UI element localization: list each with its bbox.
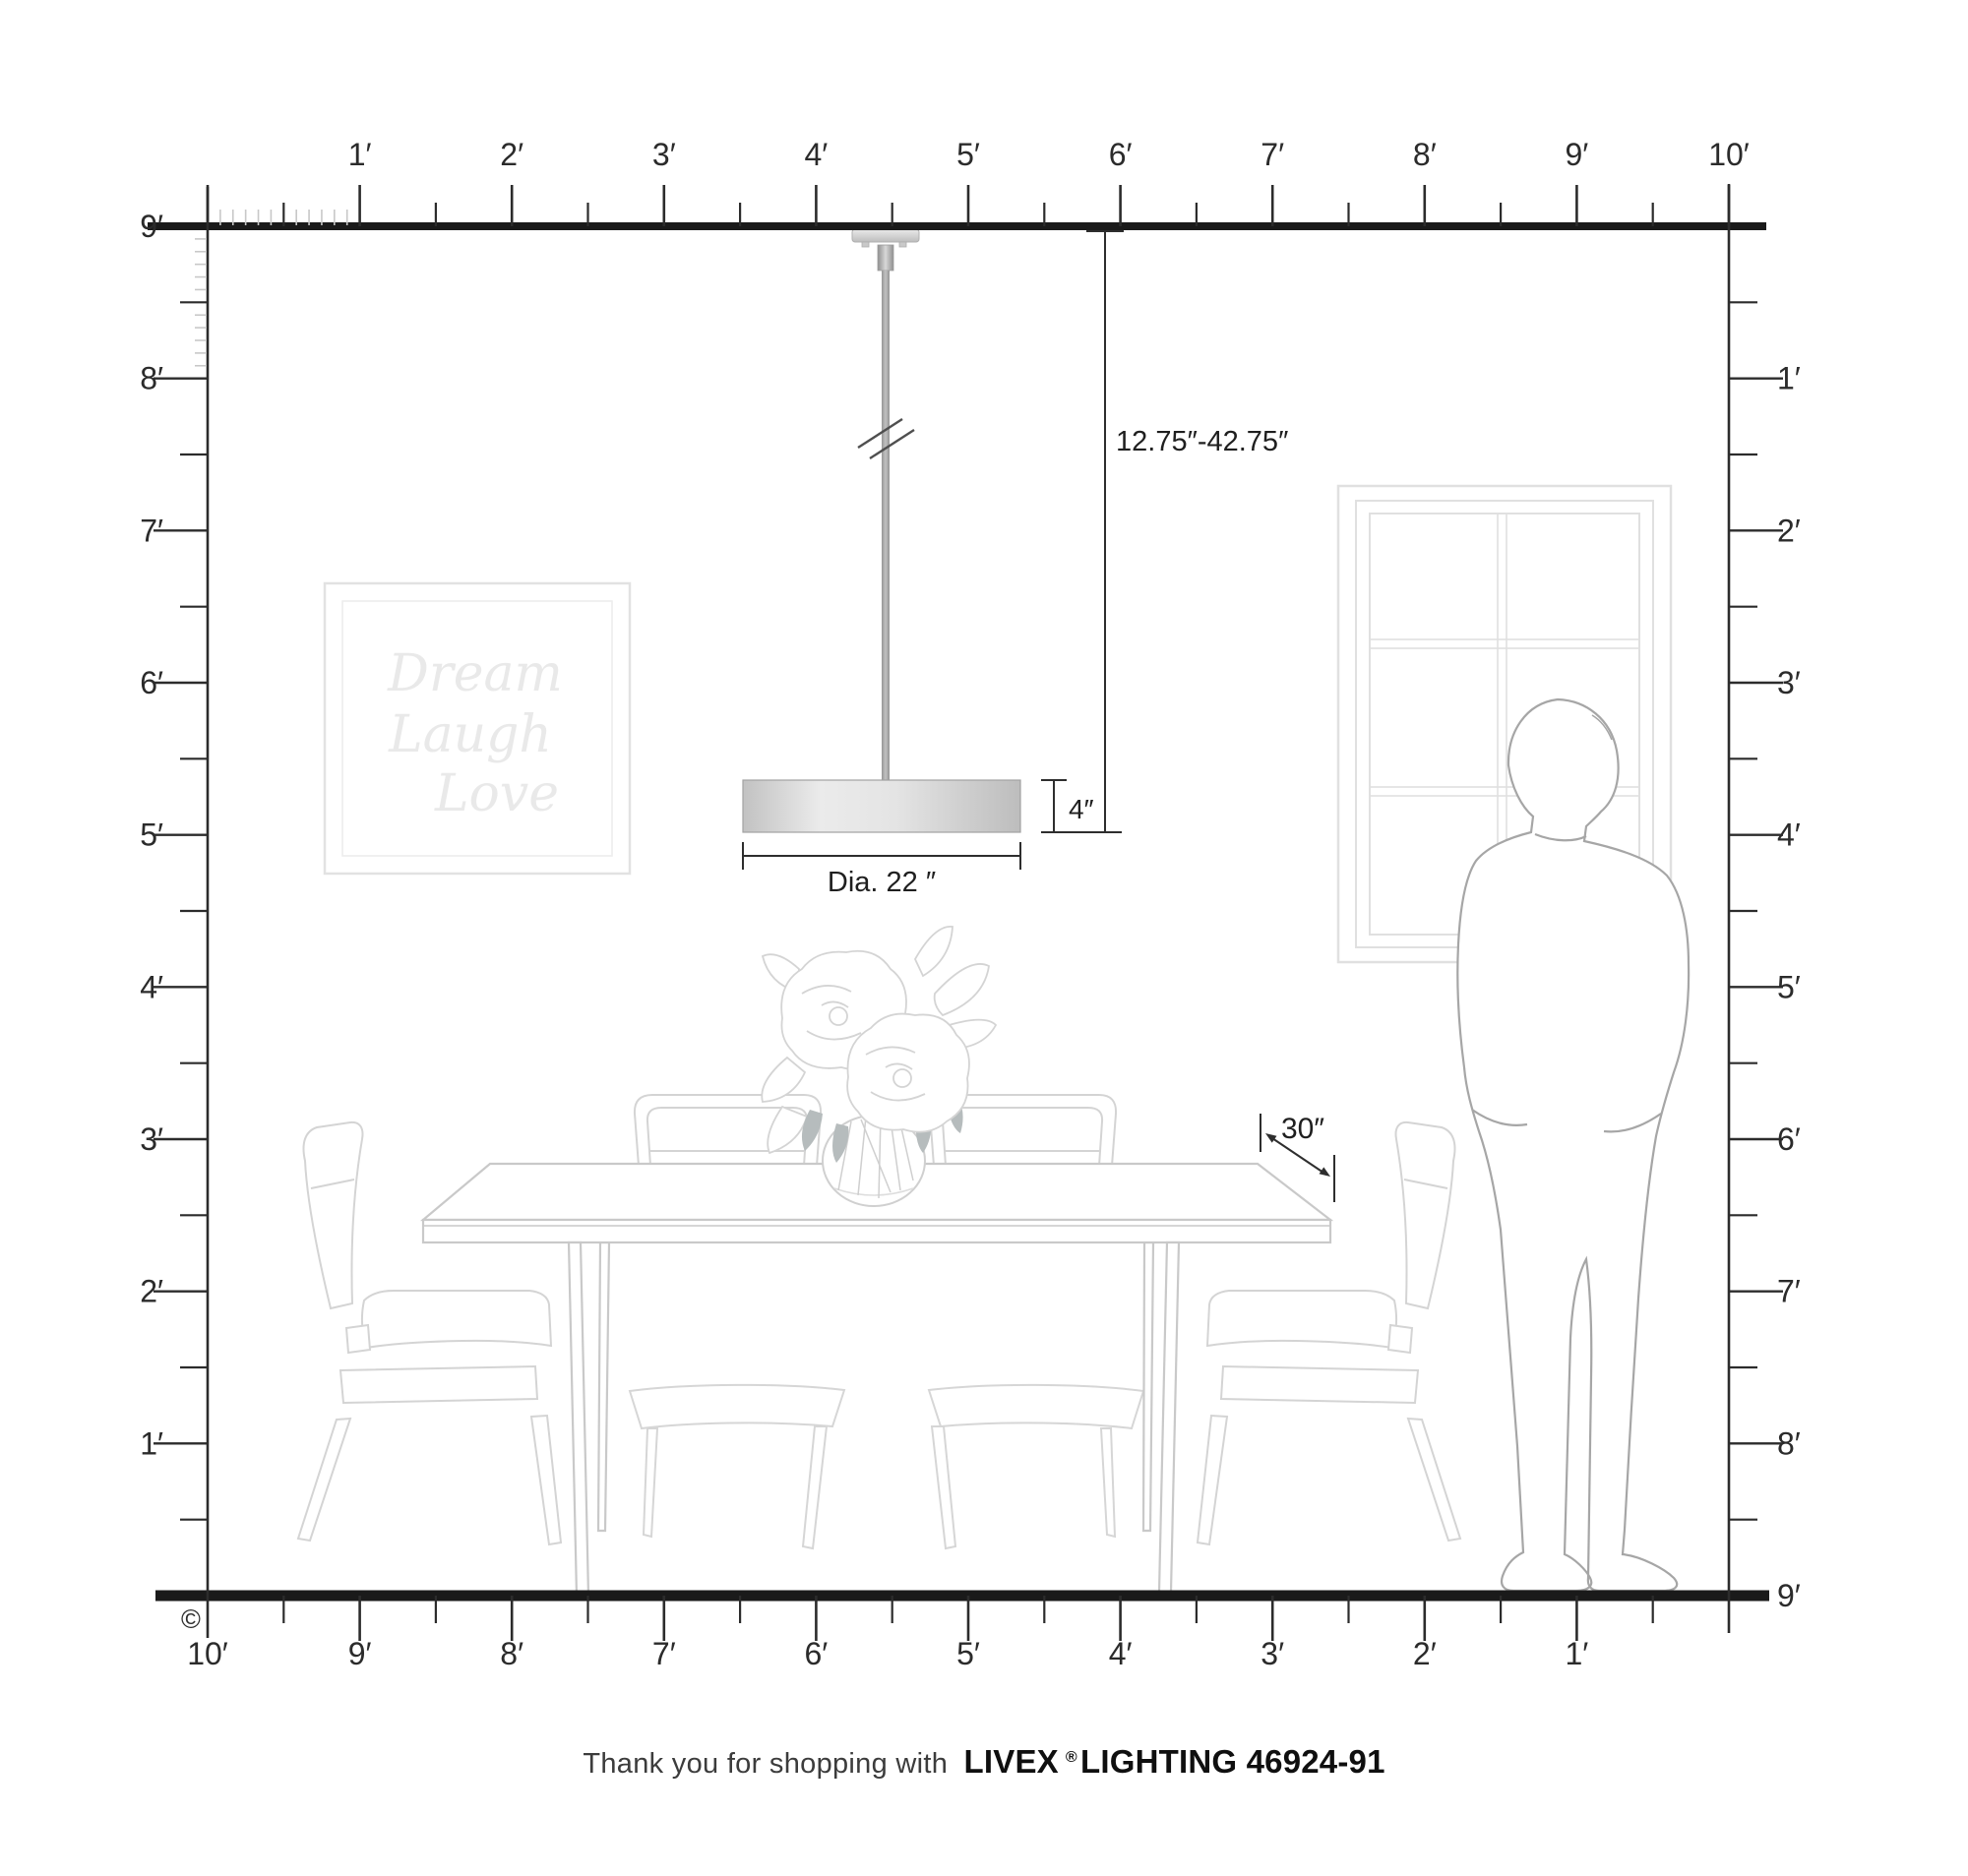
shade-height-label: 4″ [1069, 794, 1094, 824]
wall-art-frame: Dream Laugh Love [325, 583, 630, 874]
seat-left [630, 1385, 844, 1428]
left-ruler-label: 2′ [140, 1274, 163, 1309]
wall-art-line2: Laugh [388, 705, 552, 764]
bottom-ruler-label: 4′ [1109, 1636, 1133, 1671]
canopy-screw-left [862, 242, 869, 247]
ceiling-canopy [852, 229, 919, 242]
leaf [935, 964, 989, 1015]
top-ruler-label: 6′ [1109, 137, 1133, 172]
right-ruler-label: 8′ [1777, 1425, 1801, 1461]
chair-seat-cushion [1207, 1291, 1396, 1348]
wall-art-line3: Love [434, 764, 559, 823]
left-ruler-label: 7′ [140, 513, 163, 548]
seat-right [929, 1385, 1143, 1428]
table-leg-back-left [598, 1242, 609, 1531]
chair-front-leg [531, 1416, 561, 1544]
mount-arrowhead-upper [1265, 1133, 1277, 1143]
right-ruler-label: 7′ [1777, 1274, 1801, 1309]
peony-bloom-2 [847, 1014, 969, 1132]
seat-right-front-leg [932, 1426, 955, 1548]
rod-break-mark-1 [858, 419, 902, 448]
left-ruler-label: 6′ [140, 665, 163, 700]
top-ruler-label: 10′ [1708, 137, 1750, 172]
bottom-ruler-label: 10′ [187, 1636, 228, 1671]
window-mullion-horizontal-1 [1370, 639, 1639, 648]
table-leg-front-right [1159, 1242, 1179, 1592]
top-ruler-label: 7′ [1261, 137, 1284, 172]
diagram-canvas: Dream Laugh Love [0, 0, 1968, 1876]
seat-left-rear-leg [644, 1428, 657, 1537]
chair-seat-rail [1221, 1366, 1418, 1403]
footer-brand: LIVEX [964, 1743, 1059, 1780]
table-leg-back-right [1143, 1242, 1153, 1531]
top-ruler-label: 1′ [348, 137, 372, 172]
footer-prefix: Thank you for shopping with [583, 1748, 948, 1780]
chair-front-leg [1198, 1416, 1227, 1544]
drum-shade [743, 780, 1020, 832]
table-leg-front-left [569, 1242, 588, 1596]
chair-bracket [1388, 1325, 1412, 1353]
chair-bracket [346, 1325, 370, 1353]
top-ruler-label: 9′ [1566, 137, 1589, 172]
left-ruler-label: 4′ [140, 969, 163, 1004]
copyright-symbol: © [181, 1604, 201, 1634]
right-ruler-label: 4′ [1777, 817, 1801, 853]
stem-connector [878, 245, 893, 271]
seat-left-front-leg [803, 1426, 827, 1548]
bottom-ruler-label: 9′ [348, 1636, 372, 1671]
left-ruler-label: 3′ [140, 1121, 163, 1157]
pendant-fixture [743, 229, 1020, 832]
left-ruler-label: 8′ [140, 361, 163, 396]
chair-seat-cushion [362, 1291, 551, 1348]
drop-range-label: 12.75″-42.75″ [1116, 426, 1288, 457]
footer: Thank you for shopping with LIVEX®LIGHTI… [0, 1743, 1968, 1781]
chair-rear-leg [1408, 1419, 1460, 1541]
footer-product: LIGHTING 46924-91 [1080, 1743, 1385, 1780]
chair-back-post [1396, 1122, 1455, 1308]
bottom-ruler-label: 7′ [652, 1636, 676, 1671]
bottom-ruler-label: 8′ [500, 1636, 523, 1671]
bottom-ruler-label: 3′ [1261, 1636, 1284, 1671]
mount-height-label: 30″ [1281, 1113, 1324, 1145]
top-ruler-label: 2′ [500, 137, 523, 172]
right-ruler-label: 2′ [1777, 513, 1801, 548]
chair-seat-rail [340, 1366, 537, 1403]
chair-back-post [304, 1122, 363, 1308]
leaf [915, 927, 953, 976]
downrod [882, 271, 890, 782]
right-ruler-label: 1′ [1777, 361, 1801, 396]
bottom-ruler-label: 5′ [956, 1636, 980, 1671]
chair-rear-leg [298, 1419, 350, 1541]
left-ruler-label: 1′ [140, 1425, 163, 1461]
seat-right-rear-leg [1101, 1428, 1115, 1537]
bottom-ruler-label: 1′ [1566, 1636, 1589, 1671]
registered-trademark-symbol: ® [1066, 1749, 1077, 1766]
back-chair-seats [630, 1385, 1143, 1548]
dimension-diagram: Dream Laugh Love [0, 0, 1968, 1876]
flower-bouquet [762, 927, 996, 1163]
right-ruler-label: 3′ [1777, 665, 1801, 700]
bottom-ruler-label: 2′ [1413, 1636, 1437, 1671]
right-ruler-label: 5′ [1777, 969, 1801, 1004]
shade-diameter-label: Dia. 22 ″ [828, 867, 936, 898]
table-slab [423, 1220, 1330, 1242]
top-ruler-label: 4′ [805, 137, 829, 172]
rod-break-mark-2 [870, 430, 914, 458]
top-ruler-label: 5′ [956, 137, 980, 172]
top-ruler-label: 8′ [1413, 137, 1437, 172]
bottom-ruler-label: 6′ [805, 1636, 829, 1671]
wall-art-line1: Dream [387, 644, 563, 703]
left-ruler-label: 9′ [140, 209, 163, 244]
right-ruler-label: 6′ [1777, 1121, 1801, 1157]
top-ruler-label: 3′ [652, 137, 676, 172]
right-ruler-label: 9′ [1777, 1578, 1801, 1613]
left-ruler-label: 5′ [140, 817, 163, 853]
canopy-screw-right [899, 242, 906, 247]
mount-arrowhead-lower [1320, 1167, 1331, 1177]
